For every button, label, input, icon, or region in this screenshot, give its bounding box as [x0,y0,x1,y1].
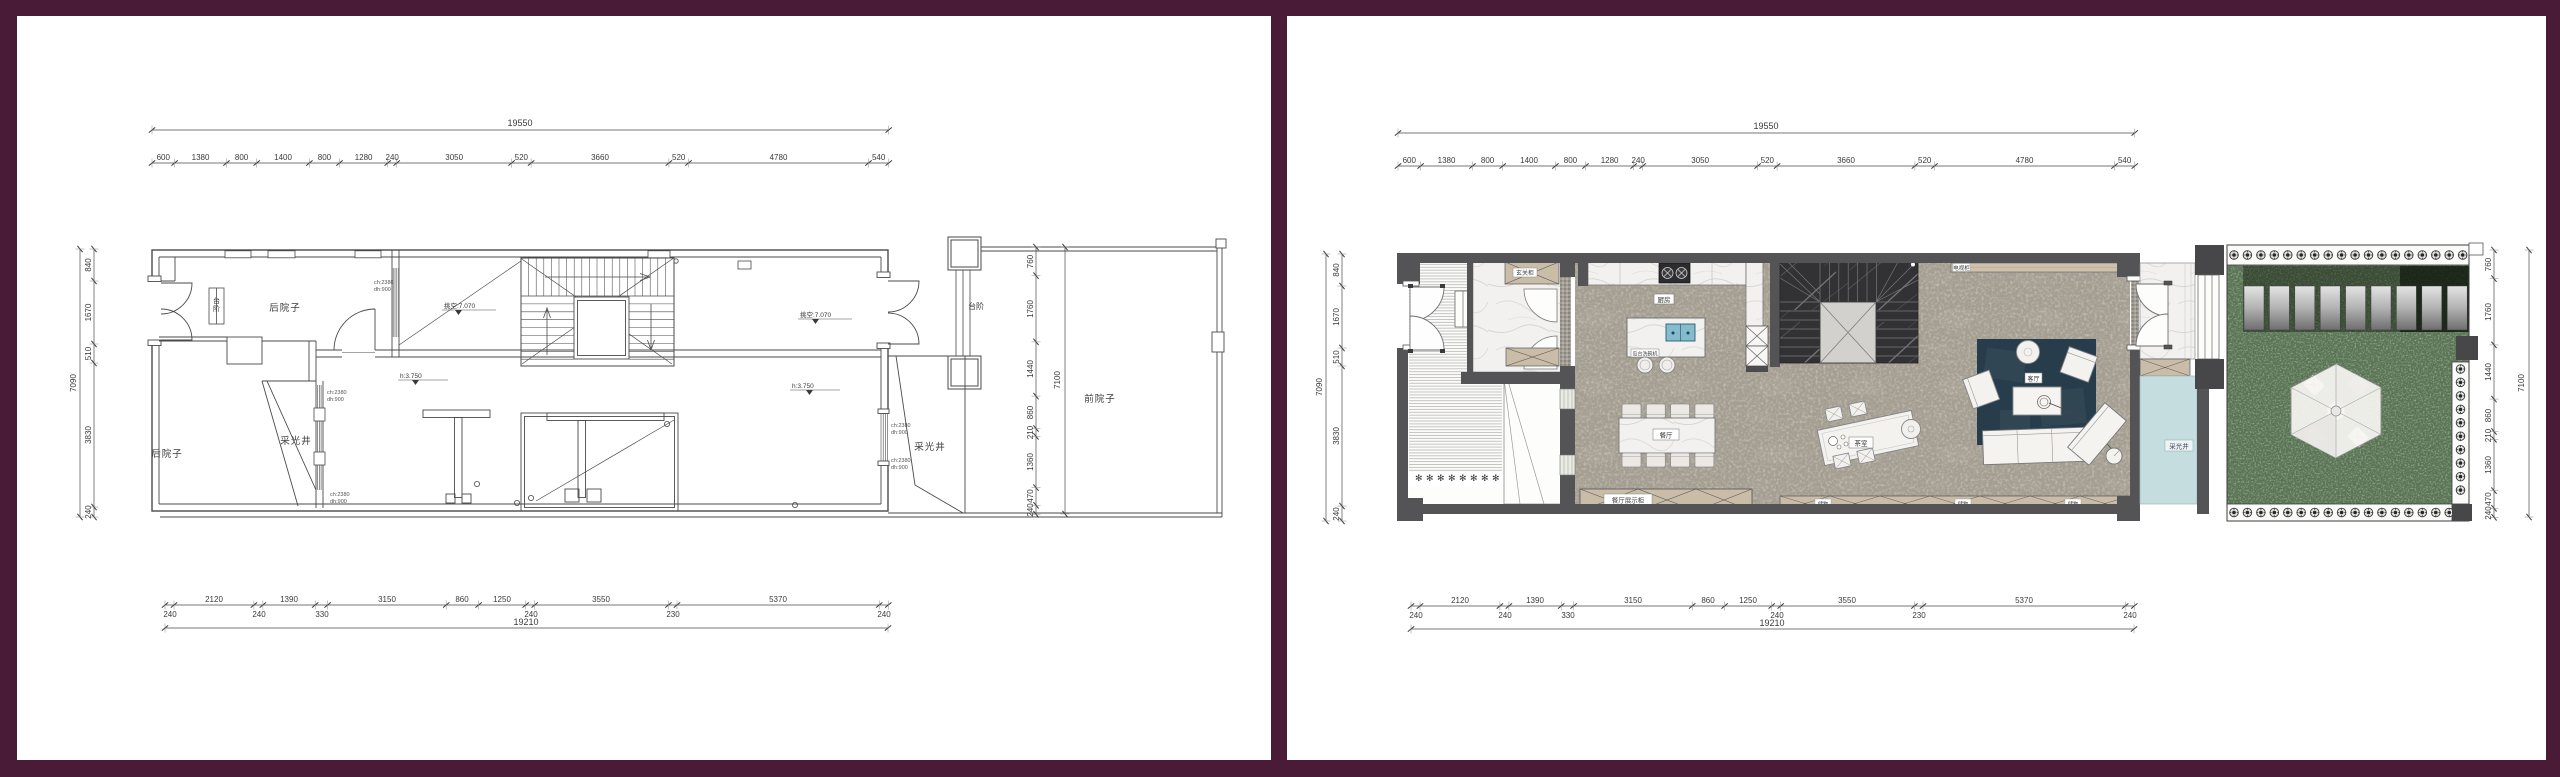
svg-text:1250: 1250 [1739,596,1757,605]
svg-text:2120: 2120 [1451,596,1469,605]
svg-text:dh:900: dh:900 [891,430,908,436]
svg-text:800: 800 [318,153,332,162]
svg-text:760: 760 [1026,254,1035,268]
svg-text:330: 330 [1561,611,1575,620]
svg-text:台阶: 台阶 [968,301,984,311]
svg-text:h:3.750: h:3.750 [400,373,422,380]
svg-text:510: 510 [1332,350,1341,364]
svg-text:840: 840 [1332,263,1341,277]
svg-text:240: 240 [1632,156,1646,165]
svg-text:1670: 1670 [1332,308,1341,326]
svg-text:3830: 3830 [84,426,93,444]
svg-text:1390: 1390 [1526,596,1544,605]
svg-text:1280: 1280 [1601,156,1619,165]
svg-text:240: 240 [84,505,93,519]
svg-text:4780: 4780 [770,153,788,162]
svg-text:600: 600 [1403,156,1417,165]
svg-text:240: 240 [2484,506,2493,520]
svg-text:1400: 1400 [274,153,292,162]
svg-text:✻: ✻ [1415,473,1423,483]
svg-text:玄关柜: 玄关柜 [1516,269,1534,277]
svg-text:3050: 3050 [445,153,463,162]
svg-text:860: 860 [2484,408,2493,422]
svg-text:阶: 阶 [213,304,220,313]
svg-text:1440: 1440 [1026,360,1035,378]
svg-text:520: 520 [515,153,529,162]
svg-text:800: 800 [235,153,249,162]
svg-text:240: 240 [1409,611,1423,620]
svg-text:3660: 3660 [1837,156,1855,165]
svg-text:230: 230 [666,610,680,619]
svg-text:1360: 1360 [2484,456,2493,474]
svg-text:4780: 4780 [2016,156,2034,165]
svg-text:dh:900: dh:900 [330,499,347,505]
svg-text:240: 240 [1332,507,1341,521]
svg-text:7100: 7100 [1053,371,1062,389]
svg-text:1380: 1380 [192,153,210,162]
svg-text:ch:2380: ch:2380 [327,390,347,396]
svg-text:厨房: 厨房 [1658,295,1671,304]
svg-text:ch:2380: ch:2380 [330,492,350,498]
svg-text:1280: 1280 [355,153,373,162]
svg-text:1760: 1760 [1026,300,1035,318]
svg-text:岛台洗碗机: 岛台洗碗机 [1632,351,1657,358]
svg-text:3150: 3150 [378,595,396,604]
svg-text:240: 240 [2123,611,2137,620]
svg-text:ch:2380: ch:2380 [891,423,911,429]
svg-text:3660: 3660 [591,153,609,162]
svg-text:餐厅: 餐厅 [1660,431,1674,440]
svg-text:240: 240 [877,610,891,619]
svg-text:860: 860 [1701,596,1715,605]
svg-text:7100: 7100 [2517,374,2526,392]
svg-text:h:3.750: h:3.750 [792,383,814,390]
svg-text:dh:900: dh:900 [327,397,344,403]
svg-text:采光井: 采光井 [280,435,312,447]
svg-text:860: 860 [455,595,469,604]
svg-text:3050: 3050 [1691,156,1709,165]
svg-text:520: 520 [1761,156,1775,165]
svg-text:3550: 3550 [1838,596,1856,605]
svg-text:800: 800 [1481,156,1495,165]
svg-text:✻: ✻ [1426,473,1434,483]
svg-text:1400: 1400 [1520,156,1538,165]
svg-text:520: 520 [1918,156,1932,165]
svg-text:240: 240 [1498,611,1512,620]
svg-text:餐厅展示柜: 餐厅展示柜 [1612,496,1645,505]
svg-text:840: 840 [84,258,93,272]
svg-text:2120: 2120 [205,595,223,604]
svg-text:客厅: 客厅 [2027,375,2039,383]
svg-text:1670: 1670 [84,303,93,321]
svg-text:✻: ✻ [1437,473,1445,483]
svg-text:ch:2380: ch:2380 [891,458,911,464]
svg-text:3830: 3830 [1332,427,1341,445]
svg-text:dh:900: dh:900 [374,287,391,293]
svg-text:19550: 19550 [1753,121,1778,131]
svg-text:5370: 5370 [769,595,787,604]
svg-text:240: 240 [1026,503,1035,517]
svg-text:电视柜: 电视柜 [1953,264,1970,272]
svg-text:1250: 1250 [493,595,511,604]
svg-text:540: 540 [2118,156,2132,165]
svg-text:✻: ✻ [1481,473,1489,483]
svg-text:后院子: 后院子 [151,448,183,460]
svg-text:茶室: 茶室 [1855,439,1869,448]
svg-text:1390: 1390 [280,595,298,604]
svg-text:1380: 1380 [1438,156,1456,165]
svg-text:1360: 1360 [1026,453,1035,471]
svg-text:ch:2380: ch:2380 [374,280,394,286]
svg-text:230: 230 [1912,611,1926,620]
svg-text:✻: ✻ [1448,473,1456,483]
svg-text:前院子: 前院子 [1084,393,1116,405]
svg-text:dh:900: dh:900 [891,465,908,471]
svg-text:台: 台 [213,296,220,305]
svg-text:860: 860 [1026,405,1035,419]
svg-text:19210: 19210 [1759,618,1784,628]
svg-text:1760: 1760 [2484,303,2493,321]
svg-text:510: 510 [84,346,93,360]
svg-text:3550: 3550 [592,595,610,604]
svg-text:600: 600 [157,153,171,162]
svg-text:520: 520 [672,153,686,162]
svg-text:240: 240 [163,610,177,619]
svg-text:5370: 5370 [2015,596,2033,605]
svg-text:3150: 3150 [1624,596,1642,605]
svg-text:210: 210 [2484,428,2493,442]
svg-text:760: 760 [2484,257,2493,271]
svg-text:540: 540 [872,153,886,162]
svg-text:800: 800 [1564,156,1578,165]
svg-text:✻: ✻ [1459,473,1467,483]
svg-text:采光井: 采光井 [2169,442,2189,451]
svg-text:1440: 1440 [2484,363,2493,381]
svg-text:✻: ✻ [1492,473,1500,483]
svg-text:✻: ✻ [1470,473,1478,483]
svg-text:470: 470 [1026,489,1035,503]
svg-text:210: 210 [1026,425,1035,439]
svg-text:19210: 19210 [513,617,538,627]
svg-text:后院子: 后院子 [269,302,301,314]
svg-text:挑空:7.070: 挑空:7.070 [800,310,831,319]
svg-text:470: 470 [2484,492,2493,506]
svg-text:挑空:7.070: 挑空:7.070 [444,301,475,310]
svg-text:240: 240 [252,610,266,619]
svg-text:19550: 19550 [507,118,532,128]
svg-text:7090: 7090 [69,374,78,392]
svg-text:330: 330 [315,610,329,619]
svg-text:240: 240 [386,153,400,162]
svg-text:7090: 7090 [1315,378,1324,396]
svg-text:采光井: 采光井 [914,441,946,453]
